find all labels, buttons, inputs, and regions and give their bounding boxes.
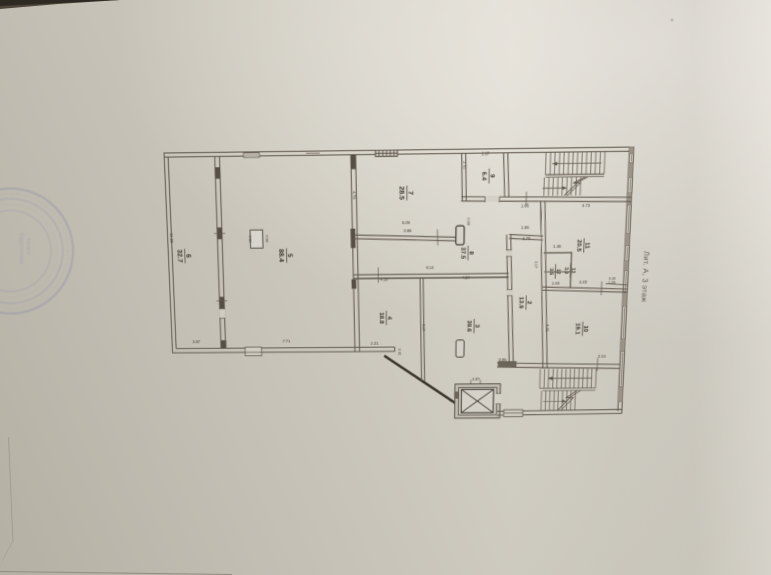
svg-text:6.08: 6.08 xyxy=(402,220,411,225)
svg-text:0.30: 0.30 xyxy=(397,349,401,356)
svg-text:7.71: 7.71 xyxy=(283,339,291,344)
svg-text:1.48: 1.48 xyxy=(553,244,562,249)
svg-text:1.05: 1.05 xyxy=(608,281,615,285)
svg-text:18.8: 18.8 xyxy=(378,312,385,324)
svg-text:7: 7 xyxy=(407,191,414,195)
svg-text:3.98: 3.98 xyxy=(404,228,412,233)
svg-text:28.5: 28.5 xyxy=(398,186,405,200)
svg-text:4.94: 4.94 xyxy=(462,275,471,280)
svg-text:3.87: 3.87 xyxy=(193,339,201,344)
svg-text:32.7: 32.7 xyxy=(176,249,183,262)
svg-text:13.9: 13.9 xyxy=(517,297,524,309)
svg-text:Кадастровая: Кадастровая xyxy=(18,233,24,264)
svg-text:11.39: 11.39 xyxy=(169,233,174,244)
svg-text:2.87: 2.87 xyxy=(472,377,480,382)
svg-text:Лит. А, 3 этаж: Лит. А, 3 этаж xyxy=(640,251,651,303)
svg-text:палата: палата xyxy=(25,238,31,255)
svg-text:2.70: 2.70 xyxy=(462,161,467,169)
svg-text:2: 2 xyxy=(526,301,533,305)
svg-text:3.08: 3.08 xyxy=(248,235,252,242)
svg-text:2.24: 2.24 xyxy=(598,354,607,359)
svg-text:4.41: 4.41 xyxy=(545,324,550,332)
svg-text:6.4: 6.4 xyxy=(480,172,487,181)
svg-text:1.05: 1.05 xyxy=(521,203,530,208)
svg-text:0.98: 0.98 xyxy=(499,357,507,362)
svg-text:13: 13 xyxy=(570,268,576,274)
svg-text:39.6: 39.6 xyxy=(465,320,472,332)
svg-text:6: 6 xyxy=(185,254,192,258)
svg-text:1.70: 1.70 xyxy=(523,236,532,241)
svg-text:12: 12 xyxy=(555,269,561,275)
svg-text:37.5: 37.5 xyxy=(459,247,466,259)
svg-text:3.17: 3.17 xyxy=(534,261,539,268)
svg-text:9.14: 9.14 xyxy=(426,265,434,270)
svg-text:0.98: 0.98 xyxy=(265,235,269,242)
svg-text:9: 9 xyxy=(489,174,496,178)
svg-text:3.17: 3.17 xyxy=(422,324,427,331)
svg-text:3.0: 3.0 xyxy=(563,267,569,274)
svg-text:0.98: 0.98 xyxy=(466,218,471,226)
svg-text:4.40: 4.40 xyxy=(579,280,588,285)
svg-text:88.4: 88.4 xyxy=(277,249,284,262)
svg-text:1.86: 1.86 xyxy=(521,225,530,230)
svg-text:4.10: 4.10 xyxy=(380,277,388,282)
svg-text:1.40: 1.40 xyxy=(552,281,561,286)
svg-text:4.79: 4.79 xyxy=(352,191,357,200)
svg-text:3: 3 xyxy=(474,324,481,328)
svg-text:3.5: 3.5 xyxy=(548,268,554,275)
svg-text:2.21: 2.21 xyxy=(371,341,379,346)
svg-text:19.1: 19.1 xyxy=(574,323,581,335)
svg-text:2.07: 2.07 xyxy=(481,151,490,156)
svg-text:20.5: 20.5 xyxy=(575,240,582,253)
svg-text:10: 10 xyxy=(582,325,589,332)
svg-text:5: 5 xyxy=(286,254,293,258)
svg-text:8: 8 xyxy=(468,251,475,255)
svg-text:11: 11 xyxy=(584,242,591,249)
svg-text:4.73: 4.73 xyxy=(582,203,591,208)
svg-text:4: 4 xyxy=(386,316,393,320)
